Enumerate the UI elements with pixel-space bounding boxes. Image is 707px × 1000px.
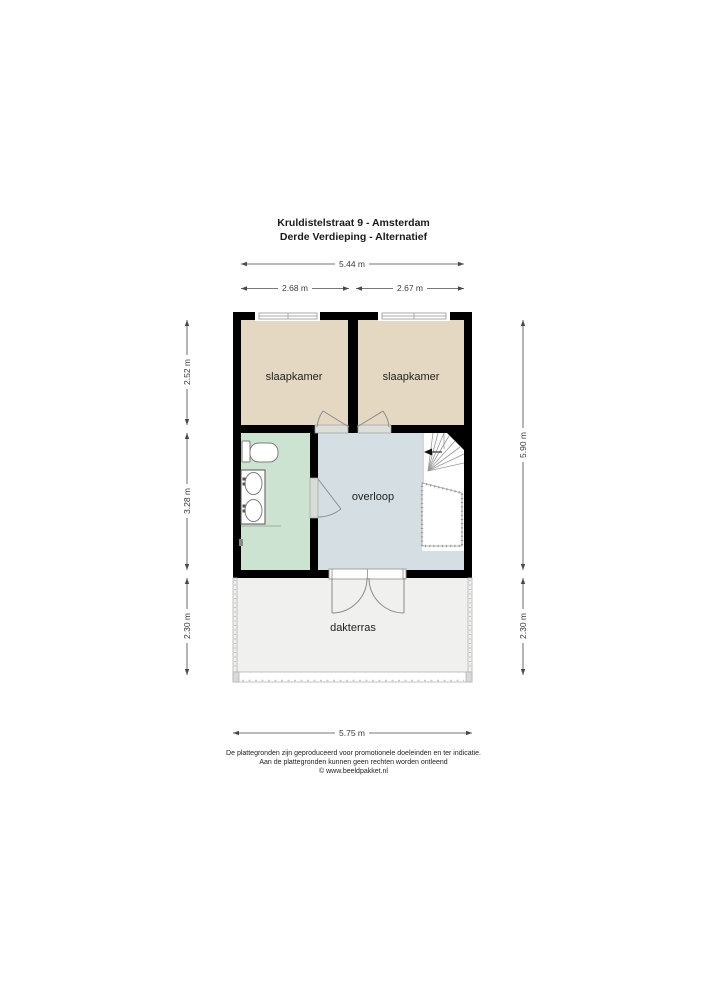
dim-label-top-total: 5.44 m — [335, 259, 369, 269]
floorplan-page: Kruldistelstraat 9 - Amsterdam Derde Ver… — [0, 0, 707, 1000]
dim-label-left-middle: 3.28 m — [182, 484, 192, 518]
wall-left — [233, 312, 241, 578]
wall-bedrooms-bottom-left — [241, 425, 315, 433]
threshold-terrace-doors — [329, 569, 406, 579]
dim-label-right-main: 5.90 m — [518, 428, 528, 462]
staircase — [422, 433, 464, 551]
dim-label-top-right: 2.67 m — [393, 283, 427, 293]
dim-label-bottom-total: 5.75 m — [335, 728, 369, 738]
footer-line-1: De plattegronden zijn geproduceerd voor … — [0, 749, 707, 758]
terrace-railing-bottom — [233, 672, 472, 682]
dim-label-left-upper: 2.52 m — [182, 355, 192, 389]
footer-disclaimer: De plattegronden zijn geproduceerd voor … — [0, 749, 707, 776]
window-bedroom-right — [378, 311, 450, 321]
wall-fitting-mark — [239, 539, 243, 546]
dim-label-left-lower: 2.30 m — [182, 609, 192, 643]
room-label-landing: overloop — [352, 491, 394, 503]
footer-line-2: Aan de plattegronden kunnen geen rechten… — [0, 758, 707, 767]
window-bedroom-left — [255, 311, 320, 321]
stair-void-outline — [422, 483, 462, 546]
wall-right — [464, 312, 472, 578]
page-title: Kruldistelstraat 9 - Amsterdam — [0, 216, 707, 230]
room-label-bedroom-right: slaapkamer — [383, 371, 440, 383]
dim-label-top-left: 2.68 m — [278, 283, 312, 293]
room-label-terrace: dakterras — [330, 622, 376, 634]
toilet-symbol — [242, 441, 278, 462]
dim-label-right-lower: 2.30 m — [518, 609, 528, 643]
page-subtitle: Derde Verdieping - Alternatief — [0, 230, 707, 244]
threshold-bathroom — [310, 478, 318, 518]
wall-bedrooms-bottom-right — [391, 425, 472, 433]
footer-line-3: © www.beeldpakket.nl — [0, 767, 707, 776]
threshold-bedroom-left — [315, 425, 348, 433]
title-block: Kruldistelstraat 9 - Amsterdam Derde Ver… — [0, 216, 707, 244]
wall-bedroom-divider-vertical — [348, 312, 358, 433]
room-label-bedroom-left: slaapkamer — [266, 371, 323, 383]
threshold-bedroom-right — [358, 425, 391, 433]
